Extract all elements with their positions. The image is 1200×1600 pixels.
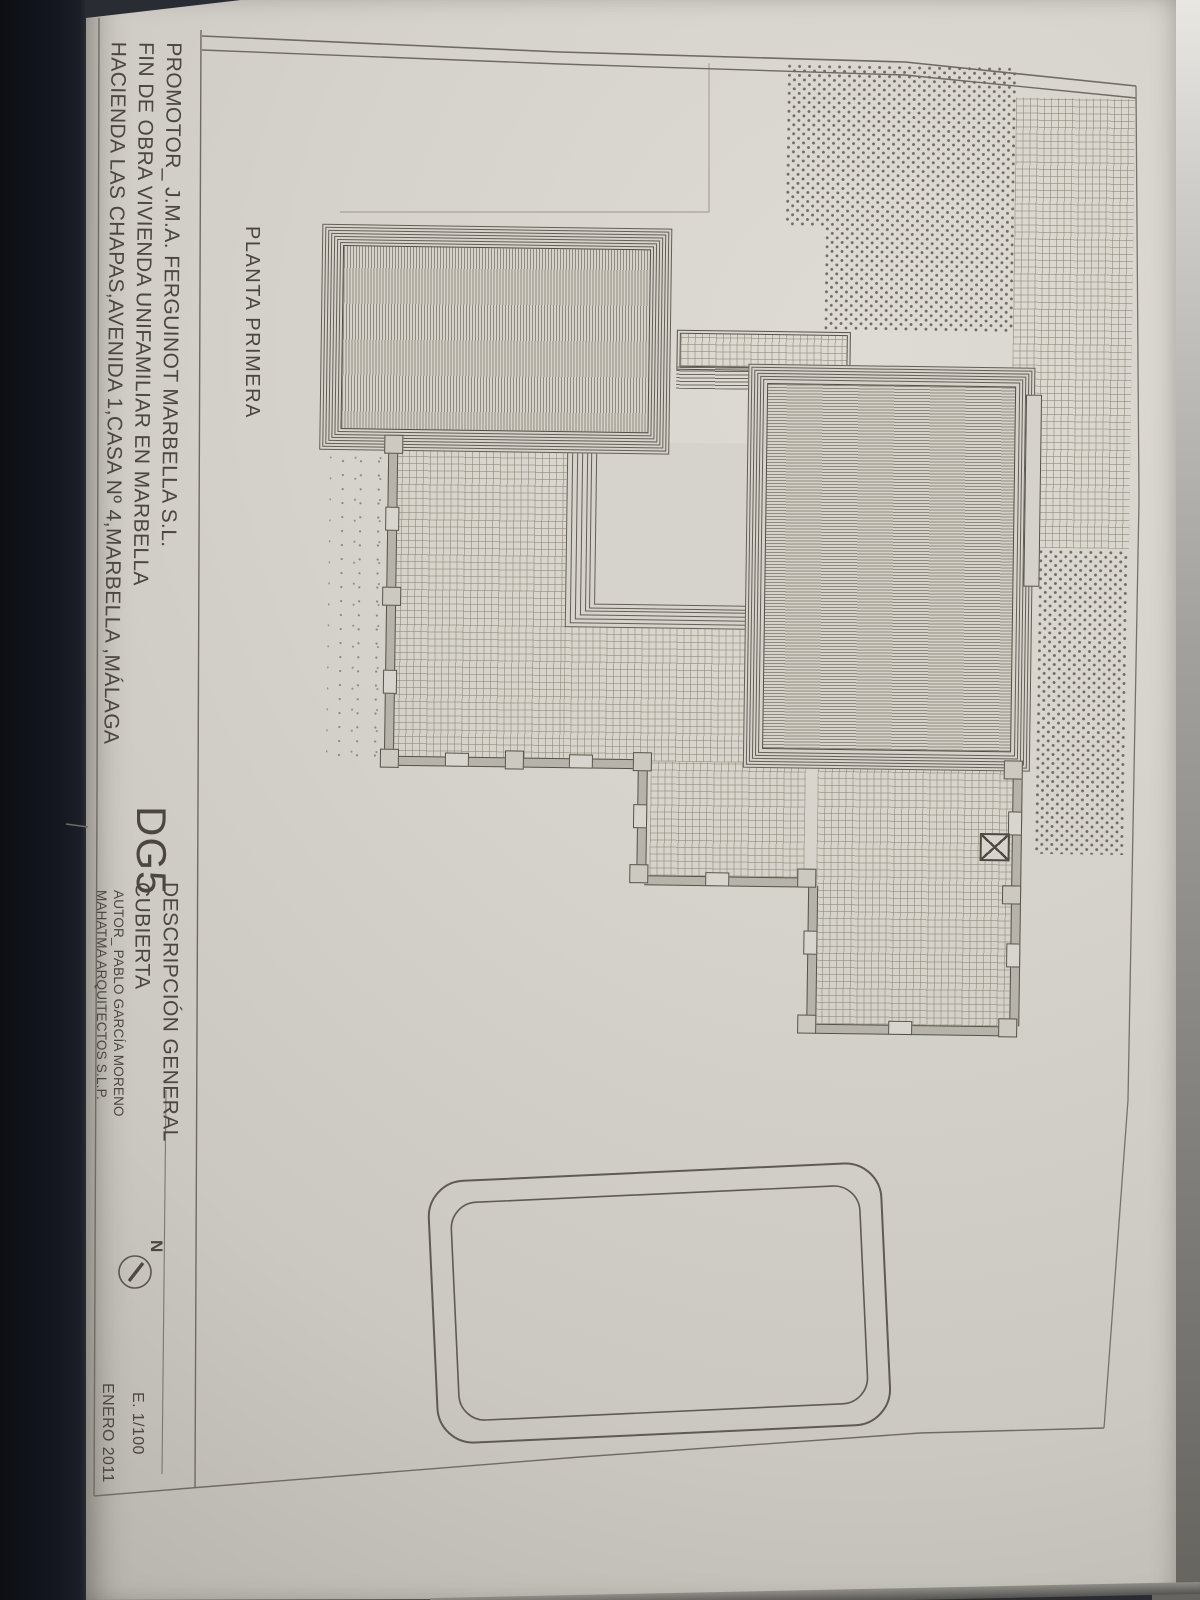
scale-label: E. 1/100 (128, 1392, 146, 1455)
pillar (384, 435, 403, 454)
wall-notch (385, 507, 399, 531)
author-block: AUTOR_ PABLO GARCÍA MORENO MAHATMA ARQUI… (92, 890, 126, 1117)
wall-notch (383, 670, 397, 694)
author-line1: AUTOR_ PABLO GARCÍA MORENO (109, 890, 126, 1117)
sheet-title-block: DESCRIPCIÓN GENERAL CUBIERTA (128, 882, 183, 1142)
gravel-stipple-strip-left (326, 437, 388, 764)
photo-of-architectural-sheet: PROMOTOR_ J.M.A. FERGUINOT MARBELLA S.L.… (0, 0, 1200, 1600)
roof-east-step-extension (676, 365, 752, 390)
terrace-grid-west (391, 438, 567, 760)
pillar (505, 750, 524, 769)
roof-north-hatch (341, 245, 652, 433)
north-label: N (146, 1240, 166, 1252)
wall-notch (803, 931, 817, 955)
pillar (797, 1014, 816, 1033)
sheet-title-line1: DESCRIPCIÓN GENERAL (156, 882, 184, 1142)
wall-notch (1006, 943, 1020, 967)
roof-east-hatch (762, 383, 1016, 752)
wall-notch (445, 753, 469, 767)
sheet-title-line2: CUBIERTA (128, 882, 156, 1142)
drain-x-marker (980, 833, 1010, 861)
project-info-block: PROMOTOR_ J.M.A. FERGUINOT MARBELLA S.L.… (96, 42, 187, 803)
wall-notch (705, 872, 729, 886)
roof-north-stepped-frame (319, 224, 672, 455)
terrace-grid-south (649, 761, 806, 877)
wall-notch (1008, 811, 1022, 835)
pillar (629, 864, 648, 883)
wall-notch (888, 1021, 912, 1035)
pillar (998, 1018, 1017, 1037)
terrace-grid-southeast (814, 764, 1013, 1027)
pillar (382, 587, 401, 606)
roof-east-side-wall (1023, 395, 1042, 587)
date-label: ENERO 2011 (98, 1383, 116, 1483)
pillar (380, 749, 399, 768)
gravel-dotted-area-top-lower (824, 227, 1015, 334)
wall-notch (633, 804, 647, 828)
roof-east-stepped-frame (743, 364, 1036, 772)
author-line2: MAHATMA ARQUITECTOS S.L.P. (92, 890, 109, 1117)
gravel-dotted-area-top (785, 64, 1017, 229)
wall-notch (569, 754, 593, 768)
plan-title: PLANTA PRIMERA (240, 226, 263, 419)
pillar (1004, 760, 1023, 779)
gravel-dotted-area-right (1035, 550, 1129, 855)
pillar (633, 752, 652, 771)
pillar (797, 868, 816, 887)
pillar (1002, 885, 1021, 904)
